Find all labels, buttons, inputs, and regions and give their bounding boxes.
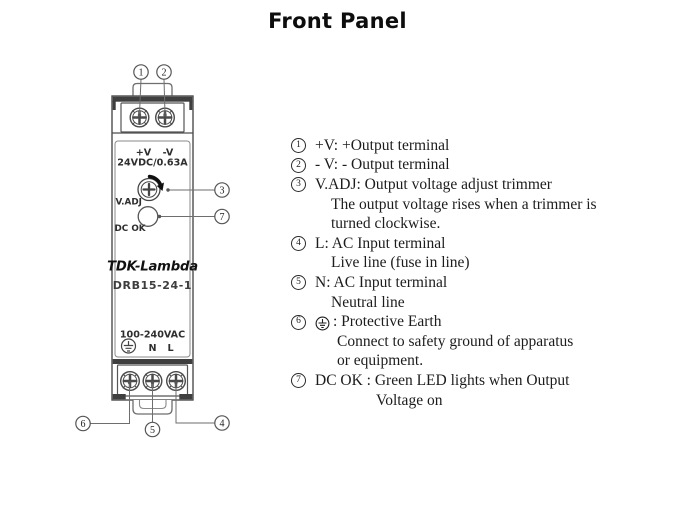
protective-earth-icon [315,316,330,331]
legend-text: N: AC Input terminal [315,274,447,292]
legend-item-4: 4 L: AC Input terminal [285,234,597,254]
callout-3-marker: 3 [291,177,306,192]
svg-text:6: 6 [81,419,86,430]
brand-logo: TDK-Lambda [107,260,198,275]
output-rating-label: 24VDC/0.63A [117,158,188,169]
legend-item-3: 3 V.ADJ: Output voltage adjust trimmer [285,175,597,195]
dcok-label: DC OK [115,224,147,234]
svg-text:5: 5 [150,425,155,436]
legend-text: Connect to safety ground of apparatus [337,333,573,351]
legend-text: L: AC Input terminal [315,235,445,253]
legend-item-5: 5 N: AC Input terminal [285,273,597,293]
callout-2-marker: 2 [291,158,306,173]
callout-1: 1 [134,65,148,79]
legend-item-3-note-1: The output voltage rises when a trimmer … [285,195,597,215]
legend-text: Neutral line [331,294,405,312]
callout-1-marker: 1 [291,138,306,153]
legend-item-7-note: Voltage on [285,391,597,411]
legend-text: Voltage on [376,392,442,410]
svg-text:1: 1 [139,67,144,78]
callout-6: 6 [76,416,90,430]
legend-item-3-note-2: turned clockwise. [285,214,597,234]
callout-4: 4 [215,416,229,430]
legend-item-6: 6 : Protective Earth [285,312,597,332]
callout-2: 2 [157,65,171,79]
device-body [112,96,193,400]
svg-text:7: 7 [220,212,225,223]
legend: 1 +V: +Output terminal 2 - V: - Output t… [285,136,597,410]
legend-item-6-note-1: Connect to safety ground of apparatus [285,332,597,352]
callout-5: 5 [145,422,159,436]
svg-text:4: 4 [220,418,225,429]
callout-5-marker: 5 [291,275,306,290]
legend-text: DC OK : Green LED lights when Output [315,372,569,390]
callout-7: 7 [215,209,229,223]
callout-7-marker: 7 [291,373,306,388]
legend-text: - V: - Output terminal [315,156,450,174]
legend-text: Live line (fuse in line) [331,254,470,272]
legend-item-5-note: Neutral line [285,293,597,313]
legend-item-7: 7 DC OK : Green LED lights when Output [285,371,597,391]
legend-text: turned clockwise. [331,215,440,233]
callout-4-marker: 4 [291,236,306,251]
front-panel-page: Front Panel [0,0,675,506]
legend-item-4-note: Live line (fuse in line) [285,254,597,274]
neutral-label: N [148,343,156,354]
legend-text: : Protective Earth [333,313,441,331]
legend-text: +V: +Output terminal [315,137,449,155]
output-terminal-block [121,103,184,132]
legend-text: V.ADJ: Output voltage adjust trimmer [315,176,552,194]
legend-text: or equipment. [337,352,423,370]
input-rating-label: 100-240VAC [120,330,185,341]
svg-text:3: 3 [220,185,225,196]
svg-text:2: 2 [162,67,167,78]
callout-3: 3 [215,183,229,197]
legend-text: The output voltage rises when a trimmer … [331,196,597,214]
live-label: L [167,343,173,354]
vadj-label: V.ADJ [116,198,142,208]
model-number: DRB15-24-1 [113,279,192,292]
legend-item-1: 1 +V: +Output terminal [285,136,597,156]
callout-6-marker: 6 [291,315,306,330]
legend-item-2: 2 - V: - Output terminal [285,156,597,176]
legend-item-6-note-2: or equipment. [285,352,597,372]
